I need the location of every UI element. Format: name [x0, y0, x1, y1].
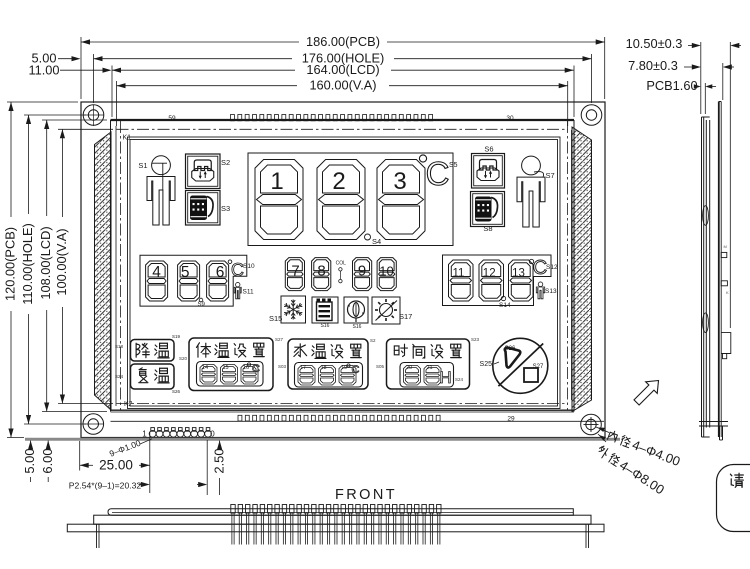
svg-text:M: M — [724, 244, 727, 249]
svg-text:S18: S18 — [115, 344, 124, 349]
svg-text:59: 59 — [168, 115, 176, 122]
svg-text:K2: K2 — [124, 401, 133, 408]
svg-text:S3: S3 — [221, 204, 230, 213]
svg-text:2: 2 — [332, 168, 345, 195]
svg-text:S19: S19 — [172, 334, 181, 339]
svg-text:2.50: 2.50 — [211, 448, 226, 473]
svg-text:1: 1 — [270, 168, 283, 195]
svg-text:1: 1 — [142, 430, 147, 439]
svg-text:7: 7 — [291, 262, 299, 279]
svg-text:15: 15 — [222, 365, 228, 371]
svg-text:12: 12 — [483, 268, 496, 280]
svg-text:11.00: 11.00 — [28, 62, 59, 77]
svg-text:S11: S11 — [243, 289, 254, 296]
svg-text:S16: S16 — [321, 323, 330, 329]
svg-text:K1: K1 — [123, 135, 132, 142]
svg-text:21: 21 — [426, 365, 432, 371]
svg-text:S17: S17 — [399, 312, 412, 321]
svg-text:COL: COL — [336, 261, 347, 267]
svg-text:S10: S10 — [243, 263, 255, 270]
svg-text:186.00(PCB): 186.00(PCB) — [306, 34, 380, 49]
svg-text:S4: S4 — [372, 237, 381, 246]
svg-text:S27: S27 — [533, 364, 544, 370]
svg-text:16: 16 — [243, 365, 249, 371]
svg-text:6: 6 — [216, 264, 225, 281]
svg-text:S26: S26 — [172, 389, 181, 394]
svg-text:120.00(PCB): 120.00(PCB) — [3, 227, 18, 301]
svg-text:S13: S13 — [545, 288, 557, 295]
svg-text:14: 14 — [202, 365, 208, 371]
svg-text:29: 29 — [507, 416, 515, 423]
svg-text:P2.54*(9–1)=20.32: P2.54*(9–1)=20.32 — [69, 481, 142, 491]
svg-text:25.00: 25.00 — [99, 458, 133, 473]
svg-text:7.80±0.3: 7.80±0.3 — [628, 58, 678, 73]
svg-text:S20: S20 — [179, 356, 188, 361]
svg-text:S14: S14 — [499, 302, 511, 309]
svg-text:20: 20 — [406, 365, 412, 371]
svg-text:S7: S7 — [546, 171, 555, 180]
svg-text:S9: S9 — [198, 302, 206, 308]
svg-text:160.00(V.A): 160.00(V.A) — [309, 78, 376, 93]
svg-text:S24: S24 — [455, 377, 464, 382]
svg-text:C: C — [252, 363, 260, 375]
svg-text:100.00(V.A): 100.00(V.A) — [54, 228, 69, 295]
svg-text:11: 11 — [453, 268, 465, 280]
svg-text:13: 13 — [512, 268, 525, 280]
svg-text:S2: S2 — [370, 338, 376, 343]
svg-text:8: 8 — [317, 262, 325, 279]
svg-text:S05: S05 — [376, 364, 385, 369]
svg-text:H: H — [439, 368, 451, 387]
svg-text:S26: S26 — [505, 346, 516, 352]
svg-text:S1: S1 — [138, 161, 147, 170]
svg-text:S23: S23 — [471, 337, 480, 342]
svg-text:4: 4 — [152, 264, 161, 281]
svg-text:S12: S12 — [546, 264, 558, 271]
svg-text:0: 0 — [210, 430, 215, 439]
svg-text:PCB1.60: PCB1.60 — [646, 78, 697, 93]
svg-text:5.00: 5.00 — [22, 448, 37, 473]
svg-text:10: 10 — [379, 263, 393, 278]
svg-text:S2: S2 — [221, 158, 230, 167]
svg-text:FRONT: FRONT — [335, 487, 397, 503]
svg-text:108.00(LCD): 108.00(LCD) — [38, 226, 53, 299]
svg-text:6.00: 6.00 — [40, 448, 55, 473]
svg-text:17: 17 — [300, 365, 306, 371]
svg-text:110.00(HOLE): 110.00(HOLE) — [20, 223, 35, 305]
svg-text:S24: S24 — [115, 374, 124, 379]
svg-text:10.50±0.3: 10.50±0.3 — [626, 36, 683, 51]
svg-text:19: 19 — [341, 365, 347, 371]
svg-text:S15: S15 — [269, 314, 282, 323]
svg-text:3: 3 — [393, 168, 406, 195]
svg-text:S27: S27 — [275, 337, 284, 342]
svg-text:9: 9 — [358, 262, 366, 279]
svg-text:C: C — [352, 364, 360, 376]
svg-text:S5: S5 — [449, 162, 458, 169]
svg-text:5: 5 — [181, 264, 190, 281]
svg-text:K: K — [726, 290, 729, 295]
svg-text:18: 18 — [320, 365, 326, 371]
svg-text:S16: S16 — [353, 324, 362, 330]
svg-text:164.00(LCD): 164.00(LCD) — [306, 62, 379, 77]
svg-text:30: 30 — [506, 115, 514, 122]
svg-text:C: C — [426, 155, 450, 192]
svg-text:S6: S6 — [484, 145, 493, 154]
svg-text:S03: S03 — [278, 364, 287, 369]
svg-text:S25: S25 — [480, 361, 493, 368]
svg-text:S8: S8 — [483, 224, 492, 233]
